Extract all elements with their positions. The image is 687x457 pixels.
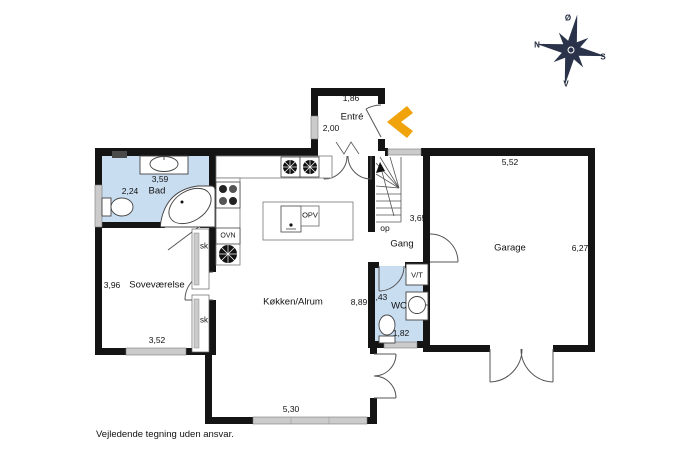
wall-bedroom-kitchen-b xyxy=(209,300,216,355)
wall-garage-bottom-right xyxy=(553,345,595,352)
wall-wc-west xyxy=(368,262,375,348)
entre-width-dim: 1,86 xyxy=(343,93,360,103)
wall-bedroom-bottom-a xyxy=(95,348,126,355)
wc-label: WC xyxy=(391,301,407,312)
wall-house-right xyxy=(423,148,430,352)
wall-wc-top-a xyxy=(368,262,379,268)
wall-garage-right xyxy=(588,148,595,352)
kitchen-label: Køkken/Alrum xyxy=(263,297,323,308)
wall-wc-bottom-b xyxy=(417,341,430,348)
window-bad xyxy=(95,185,102,227)
stair-winder xyxy=(380,157,399,188)
kitchen-fixtures xyxy=(216,156,353,265)
garage-door-arc-right xyxy=(521,349,553,382)
wall-left-a xyxy=(95,148,102,185)
cooktop-burner xyxy=(219,185,227,193)
entre-depth-dim: 2,00 xyxy=(323,123,340,133)
entrance-door-arc xyxy=(366,105,381,109)
garage-depth-dim: 6,27 xyxy=(572,243,589,253)
entre-kitchen-door-arc-right xyxy=(348,156,371,179)
wet-room-fills xyxy=(100,154,424,343)
floor-plan-drawing xyxy=(0,0,687,457)
wall-kitchen-right-b xyxy=(370,398,377,424)
wall-entre-left-b xyxy=(311,139,318,151)
dishwasher-label: OPV xyxy=(302,211,318,220)
gang-depth-dim: 3,65 xyxy=(410,213,427,223)
wc-depth-dim: 2,43 xyxy=(371,292,388,302)
toilet-tank xyxy=(102,198,111,216)
bad-width-dim: 3,59 xyxy=(152,174,169,184)
compass-east-label: Ø xyxy=(565,14,571,23)
cooktop xyxy=(216,182,240,208)
window-entre xyxy=(311,116,318,139)
wall-top-mid-a xyxy=(385,148,388,156)
entrance-door-leaf xyxy=(366,109,381,137)
kitchen-french-door-arc-bottom xyxy=(374,376,396,398)
garage-width-dim: 5,52 xyxy=(502,157,519,167)
cooktop-burner xyxy=(229,185,237,193)
kitchen-width-dim: 5,30 xyxy=(283,404,300,414)
garage-door-arc-left xyxy=(490,349,522,382)
bad-depth-dim: 2,24 xyxy=(122,186,139,196)
closet-1-door xyxy=(194,233,199,285)
gang-label: Gang xyxy=(390,239,413,250)
window-kitchen-large xyxy=(253,417,367,424)
bedroom-depth-dim: 3,96 xyxy=(104,280,121,290)
wall-garage-bottom-left xyxy=(430,345,490,352)
closet-1-label: sk xyxy=(200,242,208,251)
kitchen-french-door-arc-top xyxy=(374,354,396,376)
wall-garage-top xyxy=(430,148,595,156)
wall-entre-left-a xyxy=(311,96,318,116)
window-bedroom xyxy=(126,348,186,355)
oven-label: OVN xyxy=(220,233,235,240)
wall-kitchen-left-lower xyxy=(205,348,212,423)
wall-entre-right-b xyxy=(378,139,385,151)
bathroom-shelf xyxy=(112,151,127,158)
floor-plan: 1,86 Entré 2,00 3,59 2,24 Bad OVN OPV sk… xyxy=(0,0,687,457)
bathtub-drain xyxy=(181,201,184,204)
opening-break-mark xyxy=(336,142,359,154)
stairs xyxy=(376,157,401,222)
closet-2-door xyxy=(194,299,199,348)
island-sink-faucet xyxy=(289,223,292,226)
bedroom-width-dim: 3,52 xyxy=(149,335,166,345)
wall-left-b xyxy=(95,227,102,355)
stairs-up-label: op xyxy=(380,223,389,233)
garage-label: Garage xyxy=(494,243,526,254)
island-sink xyxy=(281,206,301,232)
window-gang xyxy=(388,149,421,155)
oven-icon-spokes xyxy=(219,245,237,263)
wall-entre-right-a xyxy=(378,96,385,104)
toilet-bowl xyxy=(111,198,133,216)
closet-2-label: sk xyxy=(200,316,208,325)
washer-dryer-label: V/T xyxy=(411,271,423,280)
kitchen-depth-dim: 8,89 xyxy=(351,297,368,307)
wc-width-dim: 1,82 xyxy=(393,328,410,338)
entrance-arrow-icon xyxy=(387,106,413,138)
compass-north-label: N xyxy=(534,41,540,50)
compass-south-label: S xyxy=(600,53,605,62)
bad-label: Bad xyxy=(149,186,166,197)
wall-top-left xyxy=(95,148,318,156)
wall-bad-bottom-a xyxy=(95,222,165,228)
cooktop-burner xyxy=(219,197,227,205)
disclaimer-text: Vejledende tegning uden ansvar. xyxy=(96,429,234,440)
compass-west-label: V xyxy=(563,80,568,89)
gang-garage-door-arc xyxy=(430,234,458,262)
bedroom-label: Soveværelse xyxy=(129,280,184,291)
exterior-walls xyxy=(95,88,595,424)
cooktop-burner xyxy=(229,197,237,205)
wall-kitchen-bottom-a xyxy=(205,417,253,424)
entre-label: Entré xyxy=(341,112,364,123)
